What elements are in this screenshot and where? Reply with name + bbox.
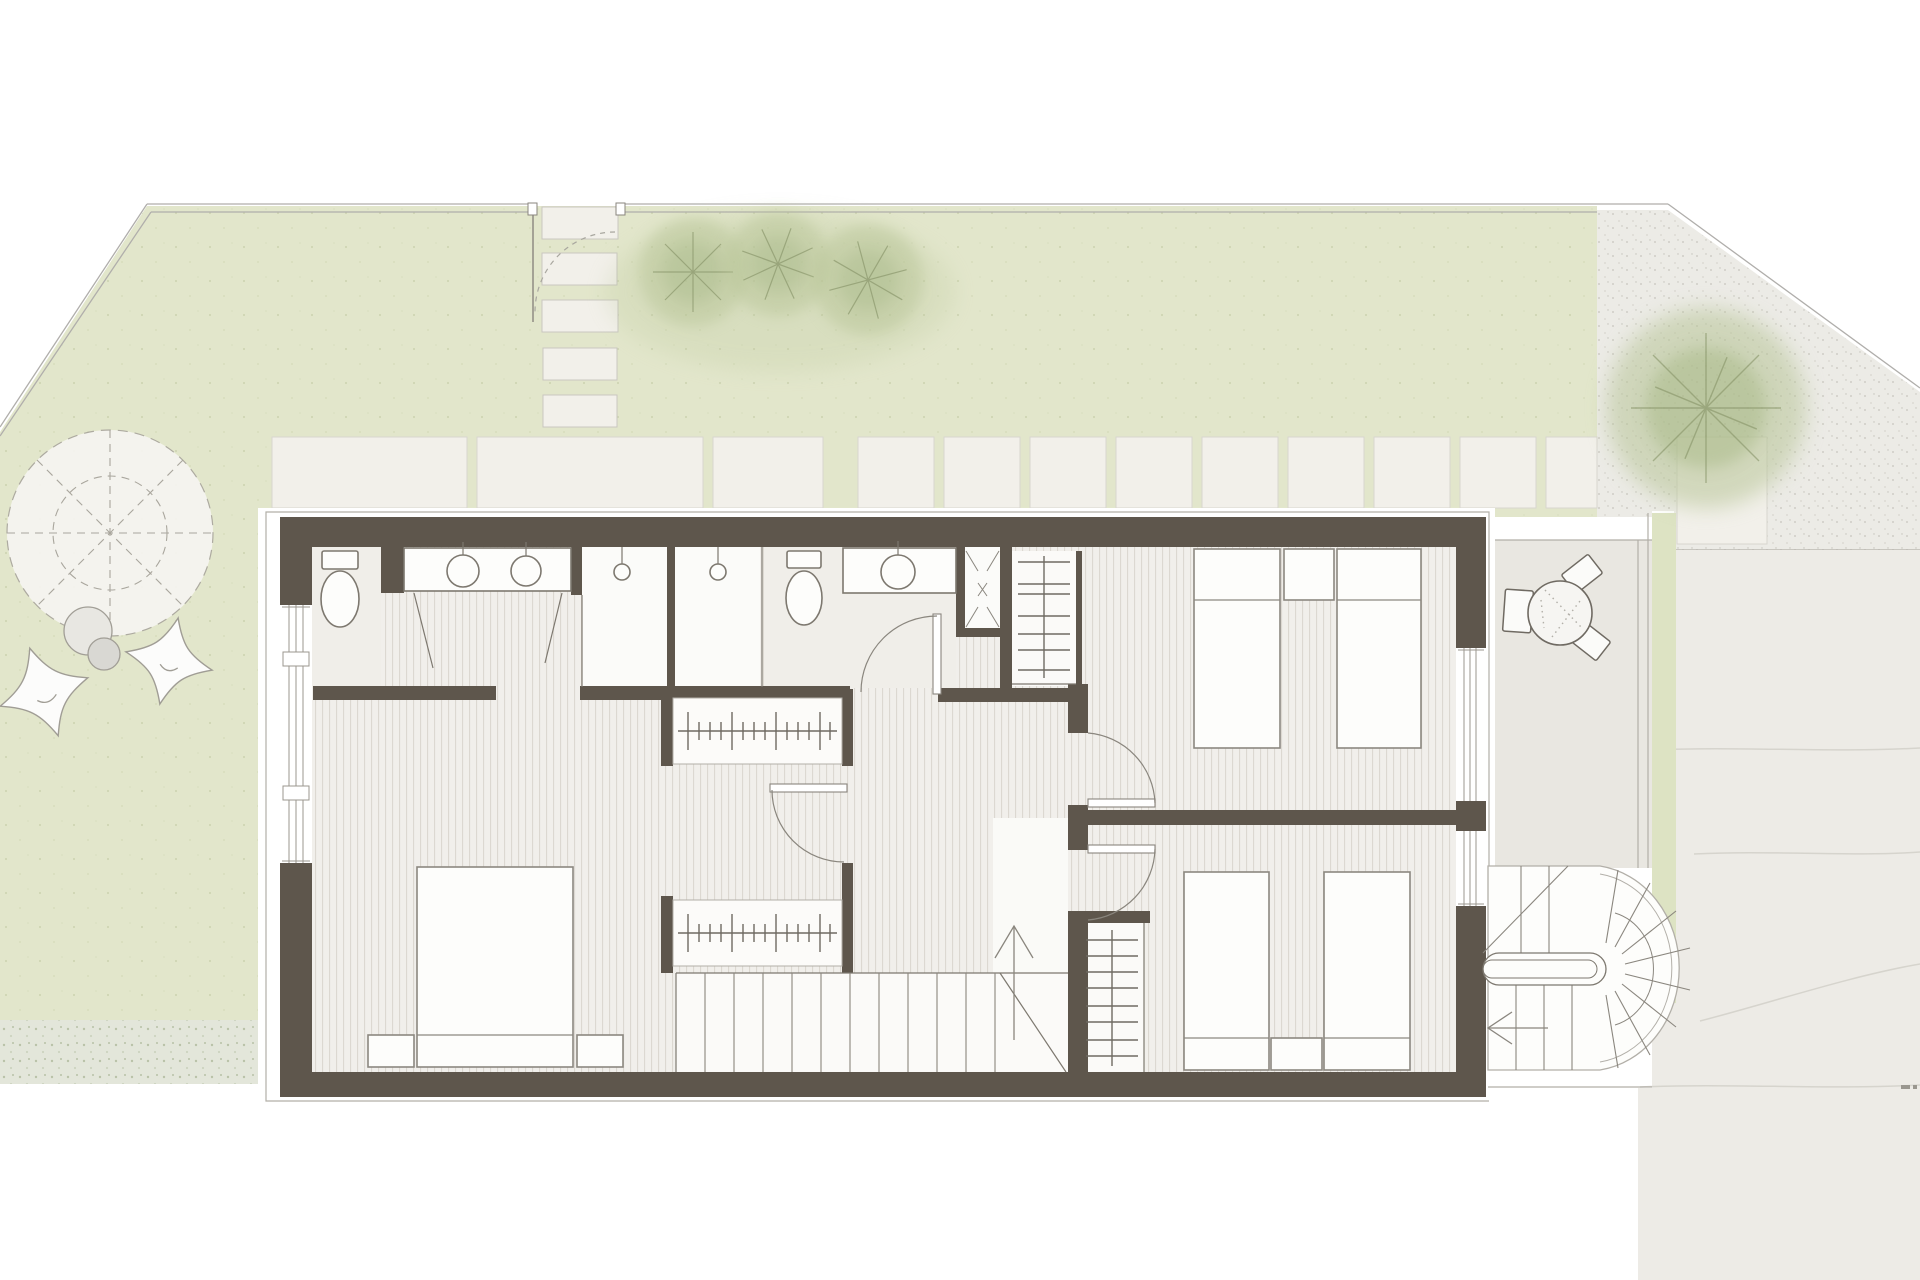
west-window <box>280 605 312 863</box>
floor-plan-page <box>0 0 1920 1280</box>
nightstand <box>1284 549 1334 600</box>
paver-square <box>1030 437 1106 508</box>
toilet <box>786 551 822 625</box>
single-bed <box>1324 872 1410 1070</box>
paver-square <box>1546 437 1597 508</box>
driveway-paving <box>1638 550 1920 1280</box>
paver-square <box>858 437 934 508</box>
large-tree <box>1606 308 1806 508</box>
paver-square <box>1374 437 1450 508</box>
double-sink-vanity <box>404 542 571 591</box>
floor-plan-canvas <box>0 0 1920 1280</box>
spiral-stair-newel <box>1483 953 1606 985</box>
house <box>258 508 1495 1108</box>
nightstand <box>577 1035 623 1067</box>
small-tree <box>813 225 923 335</box>
plan-corner-mark <box>1901 1085 1917 1089</box>
stepping-stone <box>542 300 618 332</box>
small-tree <box>726 212 830 316</box>
paver-square <box>1202 437 1278 508</box>
wardrobe-rail <box>673 900 842 966</box>
nightstand <box>1271 1038 1322 1070</box>
gate-post <box>616 203 625 215</box>
paver-square <box>1460 437 1536 508</box>
stepping-stone <box>543 348 617 380</box>
paver-slab <box>477 437 703 508</box>
window-mullion <box>283 652 309 666</box>
double-bed <box>417 867 573 1067</box>
paver-square <box>944 437 1020 508</box>
stepping-stone <box>542 207 618 239</box>
toilet <box>321 551 359 627</box>
paver-square <box>1288 437 1364 508</box>
paver-slab <box>713 437 823 508</box>
paver-square <box>1116 437 1192 508</box>
stair-landing <box>993 818 1068 973</box>
pouf <box>88 638 120 670</box>
single-bed <box>1184 872 1269 1070</box>
window-mullion <box>1456 801 1486 831</box>
stepping-stone <box>543 395 617 427</box>
shaft-floor <box>965 547 1000 628</box>
shrub-strip <box>0 1020 260 1084</box>
tree-row <box>605 212 955 372</box>
stepping-stone <box>542 253 617 285</box>
garden-parasol-circle <box>7 430 213 636</box>
gate-post <box>528 203 537 215</box>
east-window <box>1456 648 1486 906</box>
nightstand <box>368 1035 414 1067</box>
window-mullion <box>283 786 309 800</box>
round-table <box>1528 581 1592 645</box>
paver-band <box>272 437 1597 508</box>
bedroom-dividing-wall <box>1088 810 1456 825</box>
single-bed <box>1194 549 1280 748</box>
paver-slab <box>272 437 467 508</box>
wardrobe-rail <box>673 698 842 764</box>
single-bed <box>1337 549 1421 748</box>
single-sink-vanity <box>843 541 956 593</box>
